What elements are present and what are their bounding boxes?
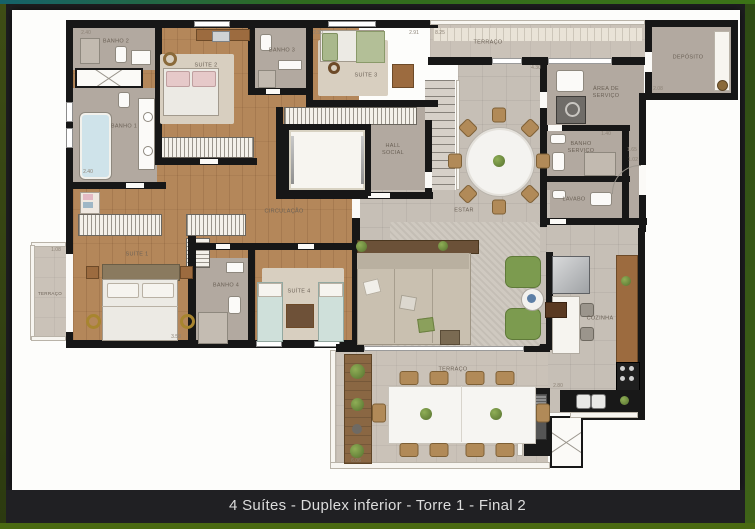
room-label-suite3: SUÍTE 3 xyxy=(355,73,378,80)
table-centerpiece xyxy=(420,408,432,420)
window xyxy=(66,102,73,122)
door-opening xyxy=(548,125,562,131)
toilet xyxy=(590,192,612,206)
room-label-estar: ESTAR xyxy=(454,208,473,215)
pillow xyxy=(192,71,216,87)
round-rug xyxy=(180,314,195,329)
door-opening xyxy=(126,183,144,188)
window xyxy=(548,58,612,64)
window xyxy=(328,21,376,27)
dining-chair xyxy=(492,200,506,215)
basin xyxy=(143,146,153,156)
burner xyxy=(629,366,634,371)
table-centerpiece xyxy=(490,408,502,420)
terraco-superior-planter xyxy=(433,28,642,41)
dimension-label: 6.06 xyxy=(351,458,361,464)
wall xyxy=(540,63,547,227)
room-label-deposito: DEPÓSITO xyxy=(673,55,704,62)
wall xyxy=(428,57,492,65)
pillow xyxy=(399,295,417,312)
dimension-label: 2.80 xyxy=(553,383,563,389)
decor xyxy=(83,202,93,208)
terrace-dining-table xyxy=(388,386,536,444)
terrace-chair xyxy=(496,443,515,457)
room-label-banho2: BANHO 2 xyxy=(103,39,129,46)
suite3-wardrobe xyxy=(284,107,417,125)
washer-drum xyxy=(565,102,580,117)
burner xyxy=(620,376,625,381)
dining-chair xyxy=(448,154,462,169)
room-label-cozinha: COZINHA xyxy=(587,316,614,323)
shower xyxy=(80,38,100,64)
terrace-chair xyxy=(400,371,419,385)
suite1-wardrobe-right xyxy=(186,214,246,236)
sink xyxy=(576,394,591,409)
wall xyxy=(306,100,438,107)
door-opening xyxy=(645,52,652,72)
dimension-label: 8.25 xyxy=(435,30,445,36)
round-rug xyxy=(328,62,340,74)
room-label-banho-servico: BANHO SERVIÇO xyxy=(564,141,598,155)
double-vanity xyxy=(138,98,155,170)
terrace-chair xyxy=(496,371,515,385)
wall xyxy=(248,250,255,348)
caption-text: 4 Suítes - Duplex inferior - Torre 1 - F… xyxy=(0,497,755,514)
dimension-label: 3.58 xyxy=(171,334,181,340)
pot xyxy=(352,424,362,434)
wall xyxy=(639,195,646,232)
armchair xyxy=(505,308,541,340)
wall xyxy=(276,107,283,199)
room-label-terraco-superior: TERRAÇO xyxy=(474,40,503,47)
fridge xyxy=(552,256,590,294)
laptop xyxy=(212,31,230,42)
room-label-hall-social: HALL SOCIAL xyxy=(379,143,407,157)
pillow xyxy=(322,33,338,61)
dining-chair xyxy=(492,108,506,123)
terrace-chair xyxy=(466,371,485,385)
dimension-label: 2.40 xyxy=(83,169,93,175)
wall xyxy=(66,182,166,189)
sink-vanity xyxy=(278,60,302,70)
frame-bottom-accent xyxy=(0,523,755,529)
wall xyxy=(612,57,645,65)
plant xyxy=(350,364,365,379)
bed-fold-line xyxy=(102,306,178,307)
laundry-sink xyxy=(556,70,584,92)
door-opening xyxy=(200,159,218,164)
pillow xyxy=(107,283,139,298)
stair-rail xyxy=(456,80,460,190)
sink xyxy=(591,394,606,409)
dimension-label: 1.08 xyxy=(51,247,61,253)
wall xyxy=(645,93,738,100)
table-seam xyxy=(461,386,462,442)
window xyxy=(194,21,230,27)
decor xyxy=(83,194,93,200)
room-label-banho1: BANHO 1 xyxy=(111,124,137,131)
terrace-chair xyxy=(466,443,485,457)
armchair xyxy=(505,256,541,288)
desk xyxy=(286,304,314,328)
coffee-station xyxy=(545,302,567,318)
sofa-seam xyxy=(394,269,395,343)
pillow xyxy=(417,317,435,333)
room-label-banho4: BANHO 4 xyxy=(213,283,239,290)
plant xyxy=(438,241,448,251)
wall xyxy=(645,20,738,27)
sink-vanity xyxy=(131,50,151,65)
room-label-suite2: SUÍTE 2 xyxy=(195,63,218,70)
basin xyxy=(143,112,153,122)
terrace-door-opening xyxy=(66,254,73,332)
dimension-label: 2.08 xyxy=(653,86,663,92)
wall xyxy=(639,93,646,165)
sofa-back xyxy=(357,253,469,269)
pillow xyxy=(166,71,190,87)
dimension-label: 1.02 xyxy=(628,157,638,163)
door-opening xyxy=(298,244,314,249)
table-centerpiece xyxy=(493,155,505,167)
cabinet xyxy=(570,412,638,418)
elevator xyxy=(283,124,371,196)
plant xyxy=(620,396,629,405)
ottoman xyxy=(440,330,460,345)
elevator-door xyxy=(291,136,294,184)
dresser xyxy=(392,64,414,88)
room-label-terraco-inferior: TERRAÇO xyxy=(439,367,468,374)
burner xyxy=(620,366,625,371)
burner xyxy=(629,376,634,381)
room-label-suite4: SUÍTE 4 xyxy=(288,289,311,296)
frame-left-accent xyxy=(0,4,6,529)
vase xyxy=(717,80,728,91)
sofa-seam xyxy=(432,269,433,343)
toilet xyxy=(228,296,241,314)
room-label-banho3: BANHO 3 xyxy=(269,48,295,55)
dimension-label: 2.91 xyxy=(409,30,419,36)
door-opening xyxy=(540,92,547,108)
console-table xyxy=(357,240,479,254)
stool xyxy=(580,327,594,341)
plant xyxy=(356,241,367,252)
parapet xyxy=(31,336,66,341)
toilet xyxy=(118,92,130,108)
frame-top-accent xyxy=(0,0,755,4)
room-label-terraco-esquerdo: TERRAÇO xyxy=(38,291,62,297)
room-label-lavabo: LAVABO xyxy=(563,197,586,204)
round-rug xyxy=(163,52,177,66)
screenshot-root: BANHO 2 SUÍTE 2 BANHO 3 SUÍTE 3 TERRAÇO … xyxy=(0,0,755,529)
door-opening xyxy=(352,198,360,218)
round-rug xyxy=(86,314,101,329)
pillow xyxy=(142,283,174,298)
parapet xyxy=(30,245,35,340)
pillow xyxy=(319,283,343,297)
decor xyxy=(527,294,536,303)
parapet xyxy=(330,350,336,468)
room-label-circulacao: CIRCULAÇÃO xyxy=(264,209,303,216)
nightstand xyxy=(86,266,99,279)
door-opening xyxy=(266,89,280,94)
elevator-door xyxy=(361,136,364,184)
shower xyxy=(584,152,616,176)
wall xyxy=(731,20,738,100)
room-label-area-servico: ÁREA DE SERVIÇO xyxy=(589,86,623,100)
closet-between-banhos xyxy=(75,68,143,88)
terrace-chair xyxy=(536,404,550,423)
dimension-label: 4.30 xyxy=(531,65,541,71)
dimension-label: 1.65 xyxy=(627,147,637,153)
wall xyxy=(188,236,196,346)
room-label-suite1: SUÍTE 1 xyxy=(126,252,149,259)
plant xyxy=(621,276,631,286)
terrace-chair xyxy=(372,404,386,423)
door-opening xyxy=(216,244,230,249)
door-opening xyxy=(368,193,390,198)
dimension-label: 1.40 xyxy=(601,131,611,137)
pillow xyxy=(258,283,282,297)
dimension-label: 2.40 xyxy=(81,30,91,36)
shower xyxy=(198,312,228,344)
wall xyxy=(248,88,313,95)
sliding-glass-door xyxy=(492,58,522,64)
door-opening xyxy=(425,172,432,188)
shower xyxy=(258,70,276,88)
nightstand xyxy=(180,266,193,279)
sink-vanity xyxy=(226,262,244,273)
wall xyxy=(336,344,364,352)
terrace-chair xyxy=(400,443,419,457)
terrace-chair xyxy=(430,443,449,457)
dining-chair xyxy=(536,154,550,169)
plant xyxy=(351,398,364,411)
duct-shaft xyxy=(550,416,583,468)
suite1-wardrobe-left xyxy=(78,214,162,236)
door-opening xyxy=(550,219,566,224)
toilet xyxy=(115,46,127,63)
dimension-label: 2.30 xyxy=(313,30,323,36)
parapet xyxy=(430,20,645,25)
kitchen-counter xyxy=(616,255,638,365)
bed-blanket xyxy=(356,31,385,63)
window xyxy=(66,128,73,148)
sliding-glass-door xyxy=(364,346,524,351)
suite2-wardrobe xyxy=(159,137,254,158)
frame-right-accent xyxy=(745,4,755,524)
plant xyxy=(350,444,364,458)
